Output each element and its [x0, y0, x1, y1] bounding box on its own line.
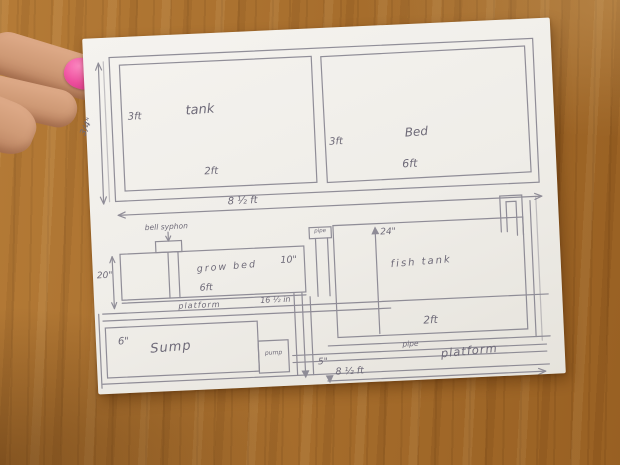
pencil-sketch	[82, 18, 566, 395]
standpipe	[327, 238, 330, 296]
stand-leg	[99, 314, 102, 388]
plan-total-width-dim: 8 ½ ft	[228, 196, 258, 207]
drop-dim: 5"	[318, 358, 328, 367]
sketch-paper: tank 3ft 2ft 3ft Bed 6ft 3/4" 8 ½ ft bel…	[82, 18, 566, 395]
dim-arrow-up	[372, 228, 378, 234]
standpipe	[315, 238, 318, 296]
right-stand-line	[530, 201, 536, 337]
grow-bed-left-dim	[112, 257, 114, 309]
platform-line	[103, 308, 391, 321]
dim-arrow-down	[302, 371, 308, 377]
overflow-pipe-inner	[506, 201, 518, 235]
bell-syphon-pipe	[178, 252, 180, 298]
sump-label: Sump	[150, 339, 192, 355]
platform-line	[328, 336, 550, 346]
grow-bed-width-dim: 6ft	[199, 283, 213, 293]
bell-syphon-label: bell syphon	[145, 222, 188, 231]
standpipe-label: pipe	[310, 229, 330, 235]
tank-height-dim: 3ft	[128, 112, 142, 123]
bed-label: Bed	[404, 125, 428, 139]
fish-tank-depth-dim: 24"	[380, 228, 396, 238]
tank-depth-dim	[375, 230, 380, 334]
plan-left-dim-line	[97, 63, 104, 204]
drain-pipe	[310, 297, 314, 375]
tank-label: tank	[185, 102, 215, 117]
tank-width-dim: 2ft	[204, 167, 218, 178]
right-stand-line	[536, 196, 543, 340]
plan-left-dim-line2	[103, 62, 109, 202]
sump-height-dim: 6"	[118, 337, 129, 347]
bed-height-dim: 3ft	[329, 137, 343, 148]
pipe-label: pipe	[402, 340, 419, 348]
photo-scene: tank 3ft 2ft 3ft Bed 6ft 3/4" 8 ½ ft bel…	[0, 0, 620, 465]
bell-syphon-pipe	[168, 252, 170, 298]
bell-syphon-cap	[155, 241, 181, 253]
platform-dim: 16 ½ in	[260, 296, 291, 305]
plan-bed-outline	[321, 46, 531, 183]
return-pipe	[293, 351, 547, 363]
grow-bed-right-dim: 10"	[280, 255, 297, 265]
fish-tank-width-dim: 2ft	[423, 315, 438, 326]
pump-label: pump	[260, 350, 288, 357]
grow-bed-left-dim: 20"	[97, 272, 113, 282]
elevation-total-width-dim: 8 ½ ft	[335, 366, 364, 377]
bed-width-dim: 6ft	[402, 158, 418, 170]
